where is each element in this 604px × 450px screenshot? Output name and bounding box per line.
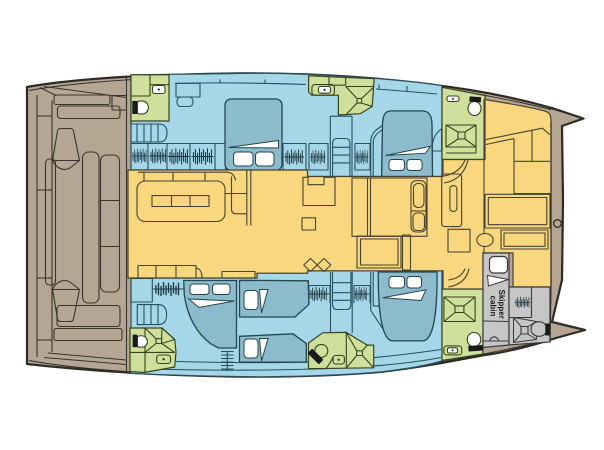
svg-text:cabin: cabin [489, 296, 498, 317]
svg-text:Skipper: Skipper [497, 290, 506, 319]
